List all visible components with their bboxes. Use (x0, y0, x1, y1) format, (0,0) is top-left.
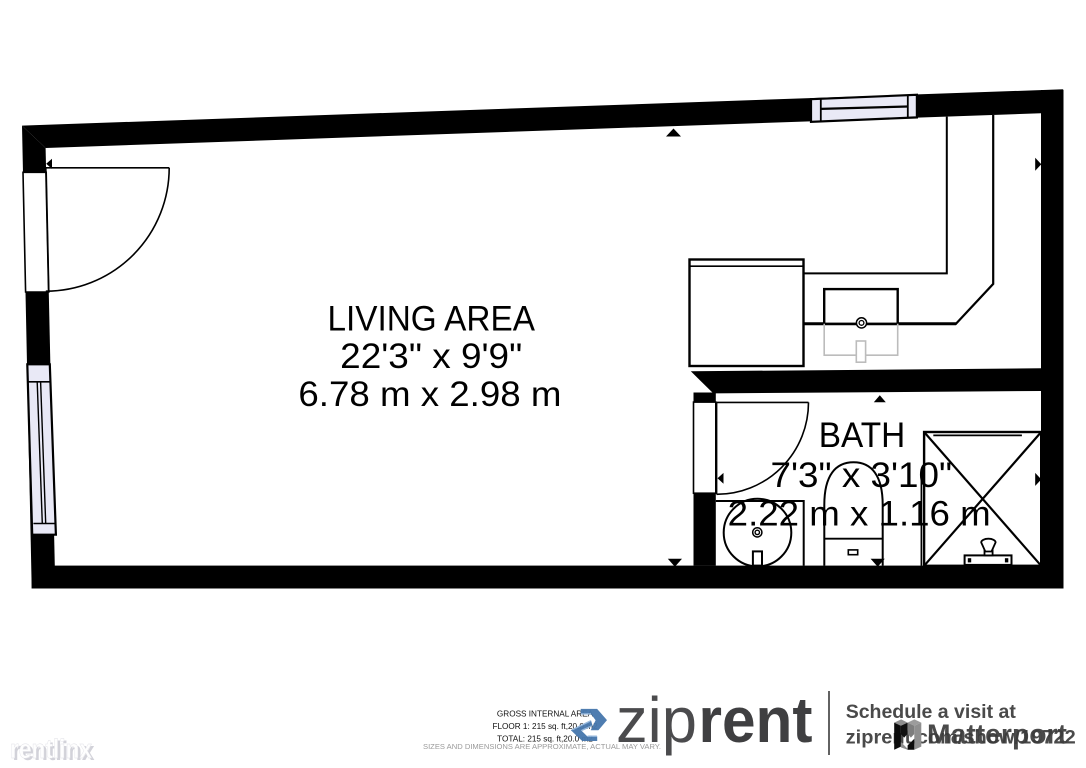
svg-text:22'3" x 9'9": 22'3" x 9'9" (340, 337, 522, 376)
svg-text:zip: zip (616, 684, 697, 756)
svg-text:GROSS INTERNAL AREA: GROSS INTERNAL AREA (497, 709, 594, 718)
svg-text:7'3" x 3'10": 7'3" x 3'10" (771, 456, 953, 495)
svg-text:6.78 m x 2.98 m: 6.78 m x 2.98 m (298, 375, 561, 414)
svg-text:BATH: BATH (819, 416, 906, 455)
svg-text:rentlinx: rentlinx (10, 734, 92, 764)
svg-text:Matterport: Matterport (927, 719, 1067, 750)
svg-text:LIVING AREA: LIVING AREA (327, 299, 535, 338)
svg-text:2.22 m x 1.16 m: 2.22 m x 1.16 m (728, 495, 991, 534)
svg-text:rent: rent (699, 684, 813, 756)
